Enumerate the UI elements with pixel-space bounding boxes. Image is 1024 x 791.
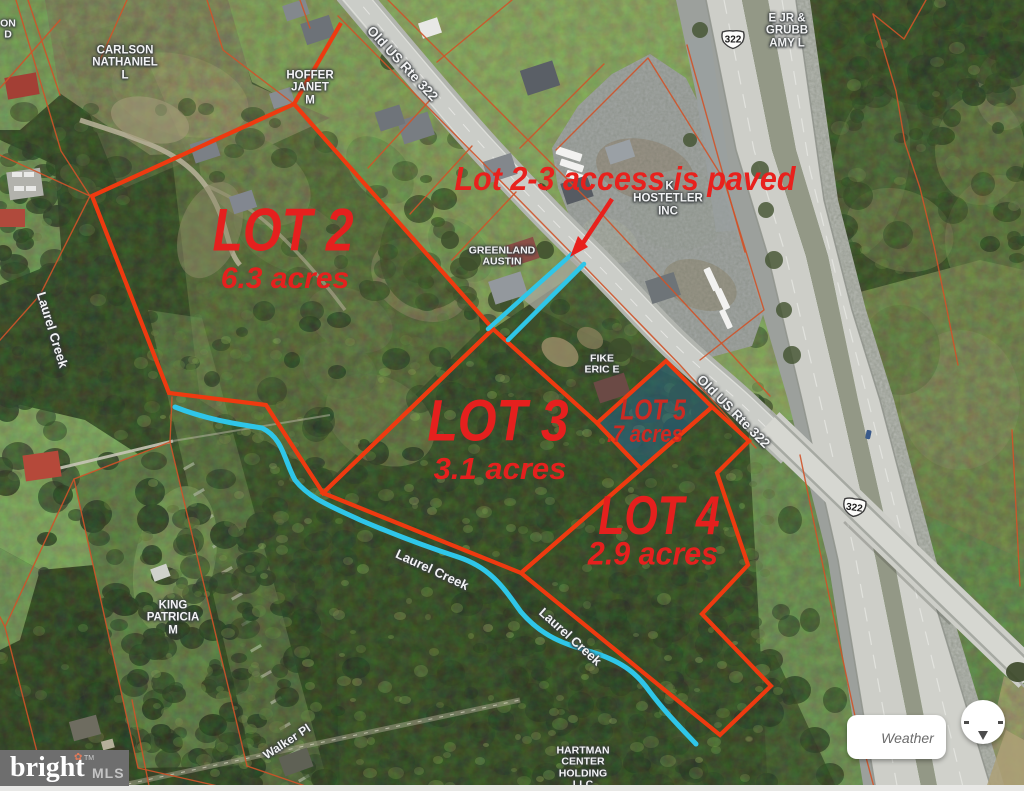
svg-text:322: 322 (725, 35, 742, 46)
svg-text:322: 322 (845, 502, 863, 515)
